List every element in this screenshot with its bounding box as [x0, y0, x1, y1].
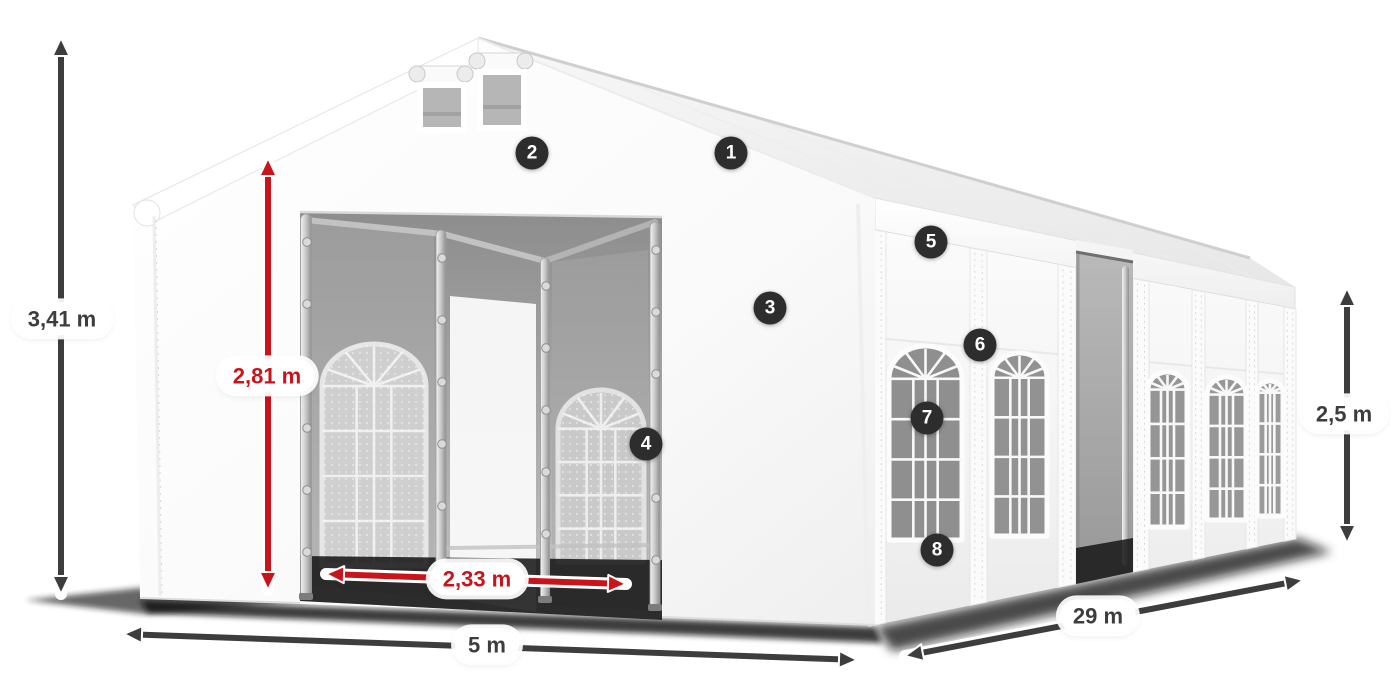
callout-badge-2[interactable]: 2	[516, 137, 549, 170]
callout-badge-4[interactable]: 4	[630, 428, 663, 461]
pole-clamp	[438, 316, 447, 325]
window	[1257, 381, 1283, 516]
callout-badge-8[interactable]: 8	[921, 534, 954, 567]
pole-clamp	[652, 370, 661, 379]
window	[889, 346, 962, 540]
window	[1207, 377, 1246, 520]
window	[992, 353, 1047, 536]
entrance-pole	[434, 230, 448, 591]
pole-clamp	[303, 486, 312, 495]
pole-foot	[538, 596, 552, 603]
side-door-opening	[1076, 240, 1133, 584]
seam-strip	[970, 248, 987, 606]
dimension-label-total-height: 3,41 m	[15, 302, 110, 335]
callout-badge-6[interactable]: 6	[964, 329, 997, 362]
dimension-label-entrance-width: 2,33 m	[430, 562, 525, 595]
seam-strip	[1284, 307, 1296, 541]
seam-strip-band	[1192, 290, 1205, 560]
pole-clamp	[303, 548, 312, 557]
seam-strip	[1192, 290, 1205, 560]
callout-badge-3[interactable]: 3	[754, 292, 787, 325]
callout-badge-7[interactable]: 7	[911, 402, 944, 435]
tent-illustration	[0, 0, 1400, 700]
pole-tube	[436, 230, 446, 588]
window	[1148, 372, 1187, 527]
entrance-opening	[299, 212, 662, 620]
seam-strip-band	[1284, 307, 1296, 541]
window	[558, 390, 644, 562]
pole-clamp	[652, 556, 661, 565]
pole-clamp	[438, 440, 447, 449]
pole-tube	[650, 222, 660, 608]
pole-clamp	[438, 378, 447, 387]
callout-badge-5[interactable]: 5	[915, 226, 948, 259]
pole-clamp	[542, 406, 551, 415]
entrance-pole	[299, 214, 313, 600]
pole-tube	[541, 258, 550, 600]
entrance-pole	[648, 222, 662, 611]
pole-clamp	[542, 530, 551, 539]
dimension-label-length: 29 m	[1060, 599, 1136, 632]
pole-clamp	[542, 468, 551, 477]
window	[322, 344, 426, 566]
window-perforation	[558, 390, 644, 562]
dimension-label-entrance-clear-height: 2,81 m	[220, 359, 315, 392]
eave-roll-end	[134, 200, 160, 226]
pole-clamp	[652, 246, 661, 255]
pole-clamp	[303, 300, 312, 309]
seam-strip-band	[970, 248, 987, 606]
dimension-label-side-wall-height: 2,5 m	[1303, 397, 1385, 430]
pole-clamp	[652, 308, 661, 317]
pole-clamp	[542, 282, 551, 291]
side-door-pole	[1122, 266, 1129, 566]
gable-vent-right	[469, 53, 533, 131]
seam-strip-band	[1058, 264, 1076, 587]
dimension-label-gable-width: 5 m	[455, 628, 519, 661]
tent-dimension-diagram: 3,41 m 2,81 m 2,33 m 5 m 29 m 2,5 m 1 2 …	[0, 0, 1400, 700]
pole-tube	[301, 214, 312, 597]
seam-strip	[1058, 264, 1076, 587]
pole-clamp	[542, 344, 551, 353]
callout-badge-1[interactable]: 1	[715, 137, 748, 170]
pole-clamp	[652, 494, 661, 503]
pole-foot	[648, 604, 662, 611]
pole-clamp	[303, 238, 312, 247]
pole-clamp	[303, 424, 312, 433]
window-perforation	[322, 344, 426, 566]
pole-clamp	[438, 502, 447, 511]
gable-vent-left	[409, 66, 473, 133]
pole-foot	[299, 593, 313, 600]
pole-clamp	[438, 254, 447, 263]
